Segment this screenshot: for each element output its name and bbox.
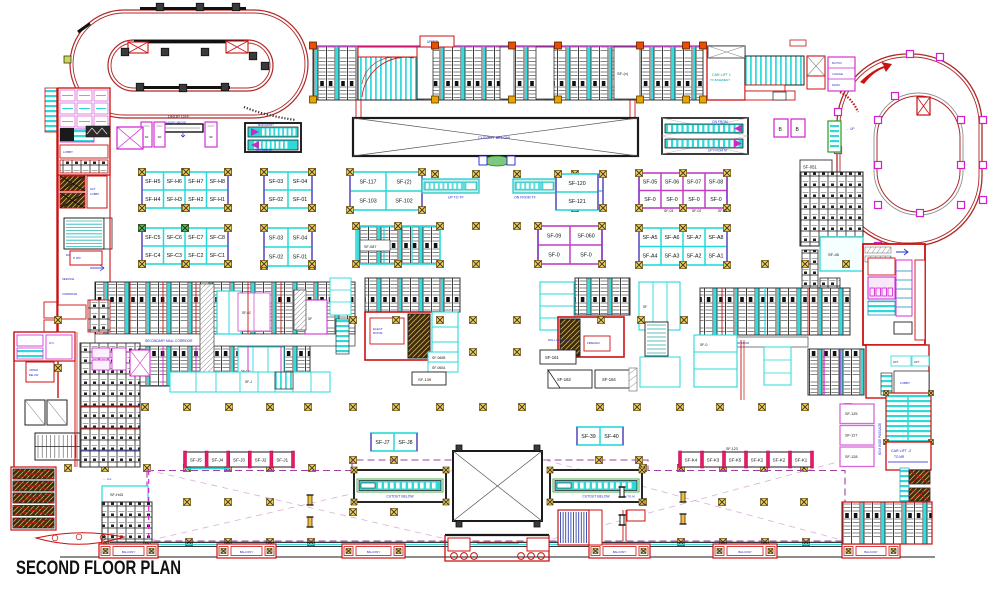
svg-text:P. RM: P. RM	[73, 256, 81, 260]
svg-text:UP FROM GF: UP FROM GF	[256, 148, 273, 152]
svg-text:DROP OFF: DROP OFF	[168, 114, 190, 119]
svg-text:SF-02: SF-02	[242, 311, 251, 315]
svg-text:SF-0: SF-0	[666, 197, 678, 203]
svg-text:LIFT: LIFT	[914, 360, 920, 364]
svg-text:SF-K3: SF-K3	[707, 457, 720, 462]
svg-text:SF-J5: SF-J5	[190, 457, 202, 462]
svg-text:CHANGE: CHANGE	[832, 72, 843, 76]
svg-text:LOBBY: LOBBY	[90, 192, 99, 196]
svg-text:← UP: ← UP	[846, 127, 855, 131]
svg-text:SF-K1: SF-K1	[795, 457, 808, 462]
svg-text:SF-H2: SF-H2	[188, 197, 203, 203]
svg-text:UP FROM M: UP FROM M	[708, 149, 727, 153]
svg-text:MALL CORRIDOR: MALL CORRIDOR	[548, 338, 571, 342]
svg-text:ROOM: ROOM	[373, 331, 383, 335]
svg-text:SF-161: SF-161	[545, 355, 559, 360]
svg-text:SF-A8: SF-A8	[708, 235, 723, 241]
svg-text:SF-08: SF-08	[709, 180, 723, 186]
svg-text:SF-A7: SF-A7	[686, 235, 701, 241]
svg-text:LOBBY: LOBBY	[900, 381, 910, 385]
svg-text:SF-A1: SF-A1	[708, 254, 723, 260]
svg-text:SF-A5: SF-A5	[642, 235, 657, 241]
svg-text:BALCONY: BALCONY	[864, 550, 878, 554]
svg-text:SF-39: SF-39	[581, 434, 595, 440]
svg-text:LIFT: LIFT	[893, 360, 899, 364]
svg-text:CUTOUT BELOW: CUTOUT BELOW	[386, 495, 414, 499]
svg-text:SF-(2): SF-(2)	[396, 179, 411, 185]
svg-text:MAITOS: MAITOS	[832, 61, 842, 65]
svg-text:SF-K5: SF-K5	[729, 457, 742, 462]
svg-text:SF-0: SF-0	[688, 197, 700, 203]
svg-text:SF-03: SF-03	[269, 179, 283, 185]
svg-text:SF-H7: SF-H7	[188, 179, 203, 185]
svg-text:SF-03: SF-03	[664, 209, 673, 213]
svg-text:SF-40: SF-40	[604, 434, 618, 440]
svg-text:SF-C3: SF-C3	[167, 253, 182, 259]
svg-text:60 M WIDE PASSAGE: 60 M WIDE PASSAGE	[878, 423, 882, 455]
svg-text:RADIO: RADIO	[832, 83, 840, 87]
svg-text:SF-J7: SF-J7	[375, 440, 389, 446]
svg-text:SF-A3: SF-A3	[664, 254, 679, 260]
svg-text:SF-139: SF-139	[418, 377, 432, 382]
svg-text:BELOW: BELOW	[29, 373, 39, 377]
svg-text:SF-01: SF-01	[718, 209, 727, 213]
svg-text:SF-02: SF-02	[269, 197, 283, 203]
svg-text:SF-060: SF-060	[577, 233, 594, 239]
svg-text:SF-01: SF-01	[293, 197, 307, 203]
svg-text:SF-J1: SF-J1	[276, 457, 288, 462]
svg-text:SF: SF	[158, 135, 162, 139]
svg-text:SF-C7: SF-C7	[188, 235, 203, 241]
svg-text:CORRIDOR: CORRIDOR	[62, 292, 77, 296]
svg-text:SF-A4: SF-A4	[642, 254, 657, 260]
svg-text:SF-125: SF-125	[845, 412, 857, 416]
svg-text:SF-C2: SF-C2	[188, 253, 203, 259]
svg-text:SF-H5: SF-H5	[145, 179, 160, 185]
svg-text:BALCONY: BALCONY	[240, 550, 254, 554]
svg-text:CUTOUT BELOW: CUTOUT BELOW	[582, 495, 610, 499]
svg-text:SF: SF	[145, 135, 149, 139]
svg-text:SF-060A: SF-060A	[432, 366, 446, 370]
svg-text:SF-C1: SF-C1	[210, 253, 225, 259]
svg-text:SF-0: SF-0	[700, 343, 707, 347]
svg-text:SF-07: SF-07	[687, 180, 701, 186]
svg-text:SF-(x): SF-(x)	[617, 71, 629, 76]
svg-text:SF-123: SF-123	[726, 447, 738, 451]
svg-text:← xxx: ← xxx	[103, 477, 112, 481]
svg-text:CUTOUT BELOW: CUTOUT BELOW	[478, 135, 510, 140]
svg-text:SF-A2: SF-A2	[686, 254, 701, 260]
svg-text:SF-H1: SF-H1	[210, 197, 225, 203]
svg-text:MAIN ENTRY: MAIN ENTRY	[258, 123, 274, 127]
svg-text:SF-H6: SF-H6	[167, 179, 182, 185]
svg-text:SF-H4: SF-H4	[145, 197, 160, 203]
svg-text:SF-117: SF-117	[360, 179, 377, 185]
svg-text:SF-127: SF-127	[845, 434, 857, 438]
svg-text:SF-0: SF-0	[710, 197, 722, 203]
svg-text:TO MR: TO MR	[894, 455, 905, 459]
svg-text:SF-103: SF-103	[359, 198, 376, 204]
svg-text:BALCONY: BALCONY	[367, 550, 381, 554]
svg-text:SF-45: SF-45	[828, 252, 840, 257]
svg-text:ON FROM: ON FROM	[712, 120, 728, 124]
svg-text:LOBBY: LOBBY	[63, 150, 73, 154]
svg-text:SF-128: SF-128	[845, 455, 857, 459]
svg-text:SF: SF	[643, 305, 647, 309]
svg-text:SF-120: SF-120	[568, 181, 585, 187]
svg-text:CAR LIFT 1: CAR LIFT 1	[712, 73, 731, 77]
svg-text:BALCONY: BALCONY	[122, 550, 136, 554]
svg-text:SF-K2: SF-K2	[773, 457, 786, 462]
svg-text:SF-164: SF-164	[602, 377, 616, 382]
svg-text:SF-121: SF-121	[568, 199, 585, 205]
svg-text:SF-H43: SF-H43	[110, 493, 123, 497]
svg-text:SF-C5: SF-C5	[145, 235, 160, 241]
svg-text:SF-J8: SF-J8	[398, 440, 412, 446]
svg-text:SF: SF	[209, 135, 213, 139]
svg-text:SF-04: SF-04	[293, 235, 307, 241]
svg-text:UP TO TF: UP TO TF	[448, 196, 464, 200]
svg-text:SF-03: SF-03	[269, 235, 283, 241]
svg-text:SF-05: SF-05	[643, 180, 657, 186]
svg-text:SF-J3: SF-J3	[233, 457, 245, 462]
svg-text:W.C.: W.C.	[49, 341, 55, 345]
svg-text:SECONDARY MALL CORRIDOR: SECONDARY MALL CORRIDOR	[145, 339, 193, 343]
svg-text:SF-J2: SF-J2	[255, 457, 267, 462]
svg-text:SF-0: SF-0	[548, 252, 560, 258]
svg-text:UPPER: UPPER	[29, 368, 38, 372]
svg-text:BALCONY: BALCONY	[613, 550, 627, 554]
svg-text:SECOND FLOOR PLAN: SECOND FLOOR PLAN	[16, 558, 181, 579]
svg-text:SF-0: SF-0	[580, 252, 592, 258]
svg-text:SERVICE: SERVICE	[62, 277, 74, 281]
svg-text:SF-087: SF-087	[364, 245, 376, 249]
svg-text:TO BASEMENT: TO BASEMENT	[710, 78, 730, 82]
svg-text:SF-051: SF-051	[803, 165, 817, 170]
svg-text:SF-09: SF-09	[547, 233, 561, 239]
svg-text:BALCONY: BALCONY	[738, 550, 752, 554]
svg-text:SF-H8: SF-H8	[210, 179, 225, 185]
svg-text:SF-C8: SF-C8	[210, 235, 225, 241]
svg-text:SF-K2: SF-K2	[751, 457, 764, 462]
svg-text:FIREMAN: FIREMAN	[587, 341, 600, 345]
svg-text:SF-H3: SF-H3	[167, 197, 182, 203]
svg-text:ON FROM TF: ON FROM TF	[514, 196, 536, 200]
svg-text:SF-0: SF-0	[644, 197, 656, 203]
svg-text:SF-J: SF-J	[245, 380, 252, 384]
svg-text:SF-J4: SF-J4	[212, 457, 224, 462]
svg-text:SF-060B: SF-060B	[432, 356, 446, 360]
svg-text:SF-K4: SF-K4	[685, 457, 698, 462]
svg-text:SF-06: SF-06	[665, 180, 679, 186]
svg-text:SF-A6: SF-A6	[664, 235, 679, 241]
svg-text:SF-04: SF-04	[293, 179, 307, 185]
svg-text:SF-01: SF-01	[293, 254, 307, 260]
svg-text:CAR LIFT -2: CAR LIFT -2	[891, 449, 911, 453]
svg-text:SF-02: SF-02	[692, 209, 701, 213]
svg-text:SF-163: SF-163	[557, 377, 571, 382]
svg-text:SF-C4: SF-C4	[145, 253, 160, 259]
svg-text:SF-C6: SF-C6	[167, 235, 182, 241]
svg-text:SF: SF	[308, 317, 312, 321]
svg-text:SF-02: SF-02	[269, 254, 283, 260]
svg-text:SF-102: SF-102	[395, 198, 412, 204]
svg-text:LIFT: LIFT	[90, 187, 96, 191]
